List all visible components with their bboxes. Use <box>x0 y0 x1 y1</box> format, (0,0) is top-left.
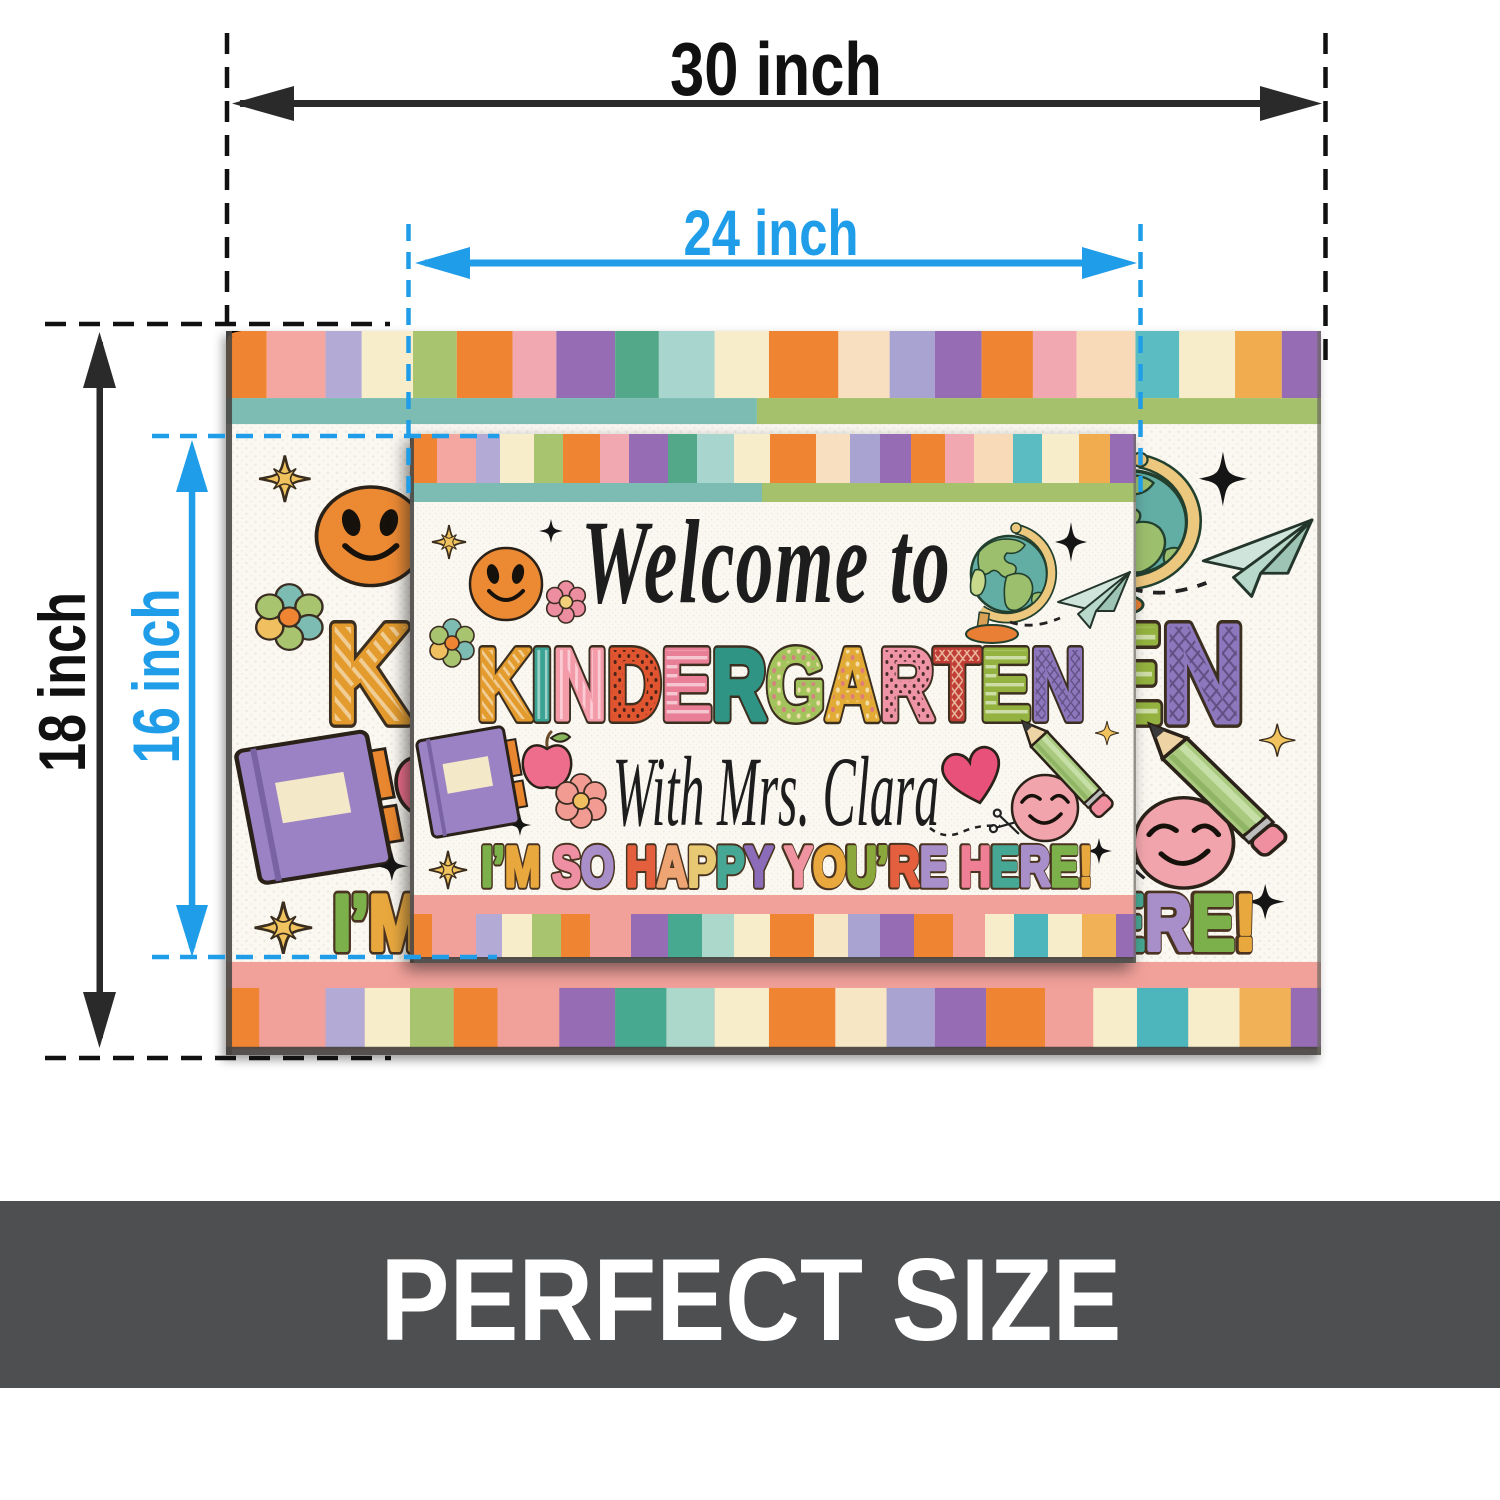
svg-text:16 inch: 16 inch <box>119 589 193 764</box>
svg-text:18 inch: 18 inch <box>25 592 99 772</box>
svg-text:24 inch: 24 inch <box>684 197 859 269</box>
svg-text:PERFECT SIZE: PERFECT SIZE <box>381 1234 1122 1365</box>
svg-text:30 inch: 30 inch <box>670 27 882 111</box>
